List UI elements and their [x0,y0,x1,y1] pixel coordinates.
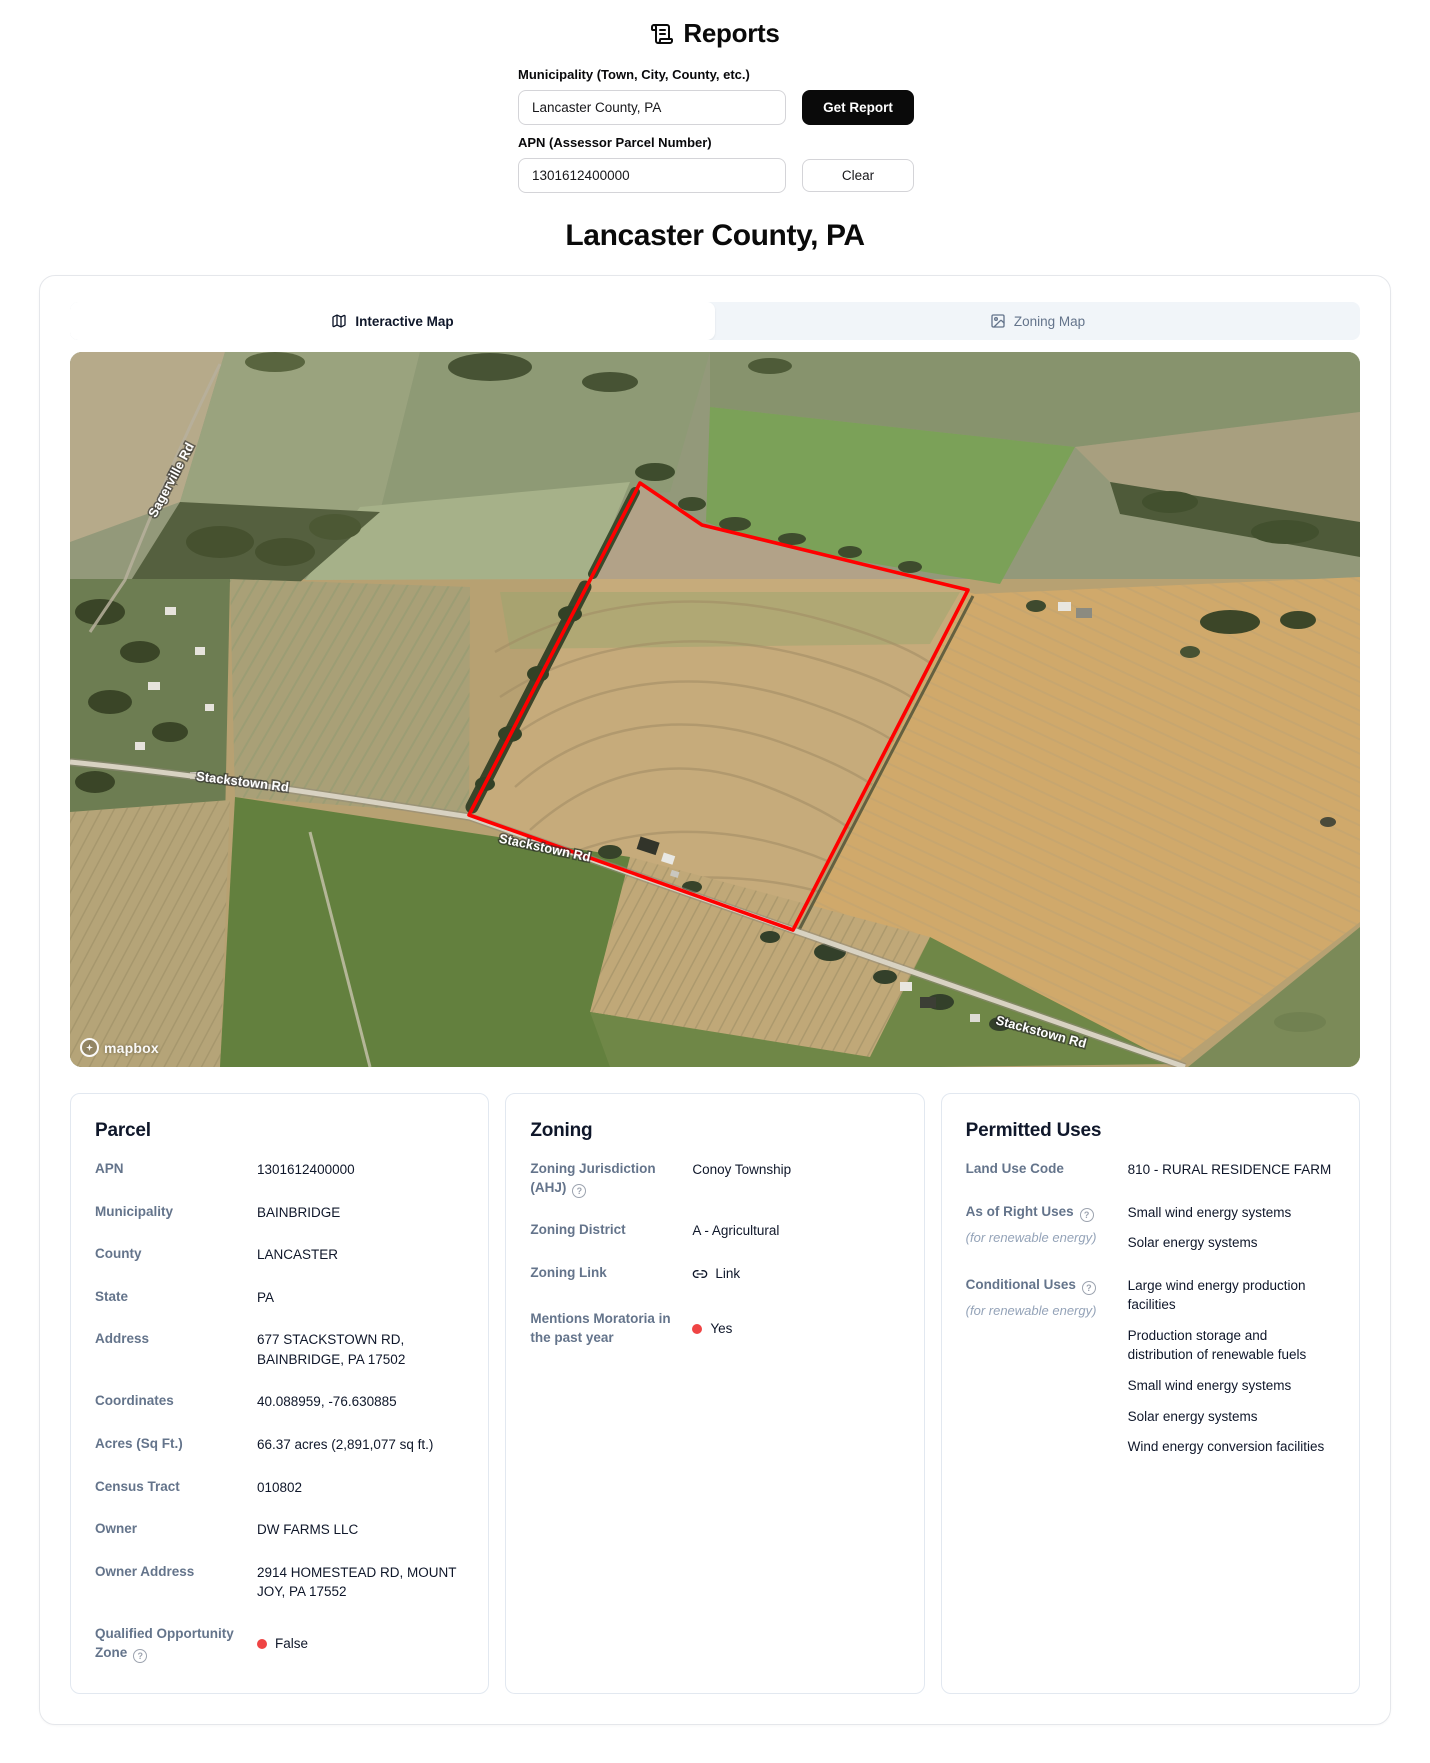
tab-zoning-map[interactable]: Zoning Map [715,302,1360,340]
help-icon[interactable]: ? [572,1184,586,1198]
mapbox-logo-icon [80,1038,99,1057]
status-dot-red [257,1639,267,1649]
municipality-input[interactable] [518,90,786,125]
help-icon[interactable]: ? [133,1649,147,1663]
mapbox-logo[interactable]: mapbox [80,1038,159,1057]
mapbox-wordmark: mapbox [104,1040,159,1056]
map-tab-bar: Interactive Map Zoning Map [70,302,1360,340]
row-owner: Owner DW FARMS LLC [95,1520,464,1540]
row-municipality: Municipality BAINBRIDGE [95,1203,464,1223]
interactive-map[interactable]: Sagerville Rd Stackstown Rd Stackstown R… [70,352,1360,1067]
zoning-card: Zoning Zoning Jurisdiction (AHJ)? Conoy … [505,1093,924,1694]
satellite-imagery: Sagerville Rd Stackstown Rd Stackstown R… [70,352,1360,1067]
row-zoning-jurisdiction: Zoning Jurisdiction (AHJ)? Conoy Townshi… [530,1160,899,1198]
tab-interactive-map[interactable]: Interactive Map [70,302,715,340]
row-county: County LANCASTER [95,1245,464,1265]
page-title: Lancaster County, PA [0,219,1430,253]
parcel-card: Parcel APN 1301612400000 Municipality BA… [70,1093,489,1694]
row-address: Address 677 STACKSTOWN RD, BAINBRIDGE, P… [95,1330,464,1369]
row-acres: Acres (Sq Ft.) 66.37 acres (2,891,077 sq… [95,1435,464,1455]
row-as-of-right-uses: As of Right Uses? (for renewable energy)… [966,1203,1335,1253]
row-census-tract: Census Tract 010802 [95,1478,464,1498]
row-apn: APN 1301612400000 [95,1160,464,1180]
row-qualified-opportunity-zone: Qualified Opportunity Zone? False [95,1625,464,1663]
app-header: Reports Municipality (Town, City, County… [0,0,1430,193]
zoning-card-title: Zoning [530,1120,899,1142]
row-zoning-link: Zoning Link Link [530,1264,899,1287]
permitted-uses-card: Permitted Uses Land Use Code 810 - RURAL… [941,1093,1360,1694]
zoning-link[interactable]: Link [692,1264,740,1284]
apn-label: APN (Assessor Parcel Number) [518,135,914,150]
tab-interactive-map-label: Interactive Map [355,314,453,329]
app-title: Reports [683,18,779,49]
get-report-button[interactable]: Get Report [802,90,914,125]
row-moratoria: Mentions Moratoria in the past year Yes [530,1310,899,1348]
status-dot-red [692,1324,702,1334]
link-icon [692,1266,708,1282]
row-owner-address: Owner Address 2914 HOMESTEAD RD, MOUNT J… [95,1563,464,1602]
row-coordinates: Coordinates 40.088959, -76.630885 [95,1392,464,1412]
clear-button[interactable]: Clear [802,159,914,192]
row-state: State PA [95,1288,464,1308]
row-land-use-code: Land Use Code 810 - RURAL RESIDENCE FARM [966,1160,1335,1180]
report-card: Interactive Map Zoning Map [39,275,1391,1725]
permitted-uses-card-title: Permitted Uses [966,1120,1335,1142]
info-cards-row: Parcel APN 1301612400000 Municipality BA… [70,1093,1360,1694]
scroll-icon [650,22,674,46]
report-form: Municipality (Town, City, County, etc.) … [518,65,912,193]
help-icon[interactable]: ? [1080,1208,1094,1222]
row-conditional-uses: Conditional Uses? (for renewable energy)… [966,1276,1335,1457]
help-icon[interactable]: ? [1082,1281,1096,1295]
apn-input[interactable] [518,158,786,193]
renewable-energy-note: (for renewable energy) [966,1302,1116,1320]
renewable-energy-note: (for renewable energy) [966,1229,1116,1247]
map-icon [331,313,347,329]
municipality-label: Municipality (Town, City, County, etc.) [518,67,914,82]
tab-zoning-map-label: Zoning Map [1014,314,1085,329]
page-header-title-row: Reports [0,18,1430,49]
row-zoning-district: Zoning District A - Agricultural [530,1221,899,1241]
image-icon [990,313,1006,329]
parcel-card-title: Parcel [95,1120,464,1142]
